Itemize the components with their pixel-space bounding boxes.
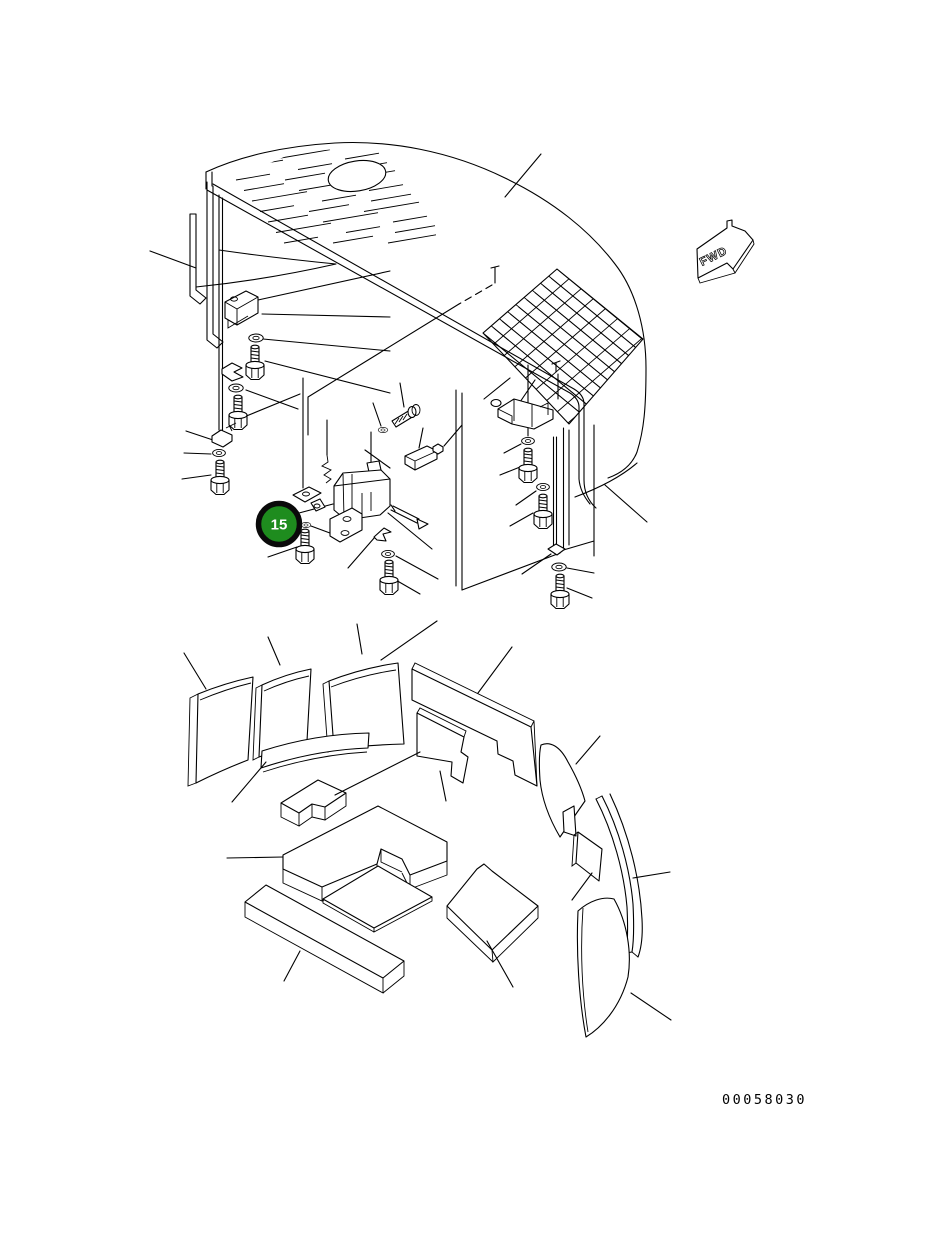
hood-hatching [220,150,443,243]
latch-rod-pin [391,505,428,529]
insulation-panels [188,663,642,1037]
left-frame-rails [190,182,223,348]
hood-oval-opening [326,157,388,196]
foot-bracket-right [548,544,565,555]
insulation-panel-8 [577,898,629,1037]
washer [249,334,263,342]
callout-number: 15 [271,517,288,534]
bolt [229,395,247,429]
latch-plate [293,487,325,511]
hinge-bracket-right [491,399,553,429]
latch-body [334,461,390,520]
arrow-clip [374,528,391,541]
insulation-pad-a [281,780,346,826]
washer [382,550,395,557]
latch-bracket [330,508,362,542]
washer [552,563,566,571]
hood-left-lip [196,250,336,287]
callout-15-badge[interactable]: 15 [259,504,300,545]
fwd-direction-arrow: FWD [697,220,754,283]
z-clip-left [222,363,243,381]
adjust-screw [392,405,420,428]
washer [301,522,311,527]
bolt [551,574,569,608]
spring-clip [322,455,331,483]
drawing-number: 00058030 [722,1092,807,1108]
support-rod-left [219,195,223,430]
bolt [211,460,229,494]
bolt [380,560,398,594]
insulation-pad-e [447,864,538,962]
hood-lower-right [560,425,647,556]
washer [229,384,243,392]
insulation-panel-7 [572,832,602,881]
striker-plate [405,444,443,470]
washer [213,449,226,456]
support-rod-right [554,437,557,548]
parts-diagram-page: 15 FWD [0,0,951,1254]
insulation-panel-6 [539,744,585,837]
hinge-bracket-left [225,291,258,328]
washer [522,437,535,444]
bolt [246,345,264,379]
bolt [534,494,552,528]
washer [537,483,550,490]
parts-diagram-canvas: 15 FWD [0,0,951,1254]
washer [378,427,388,432]
bolt [519,448,537,482]
insulation-panel-1 [188,677,253,786]
